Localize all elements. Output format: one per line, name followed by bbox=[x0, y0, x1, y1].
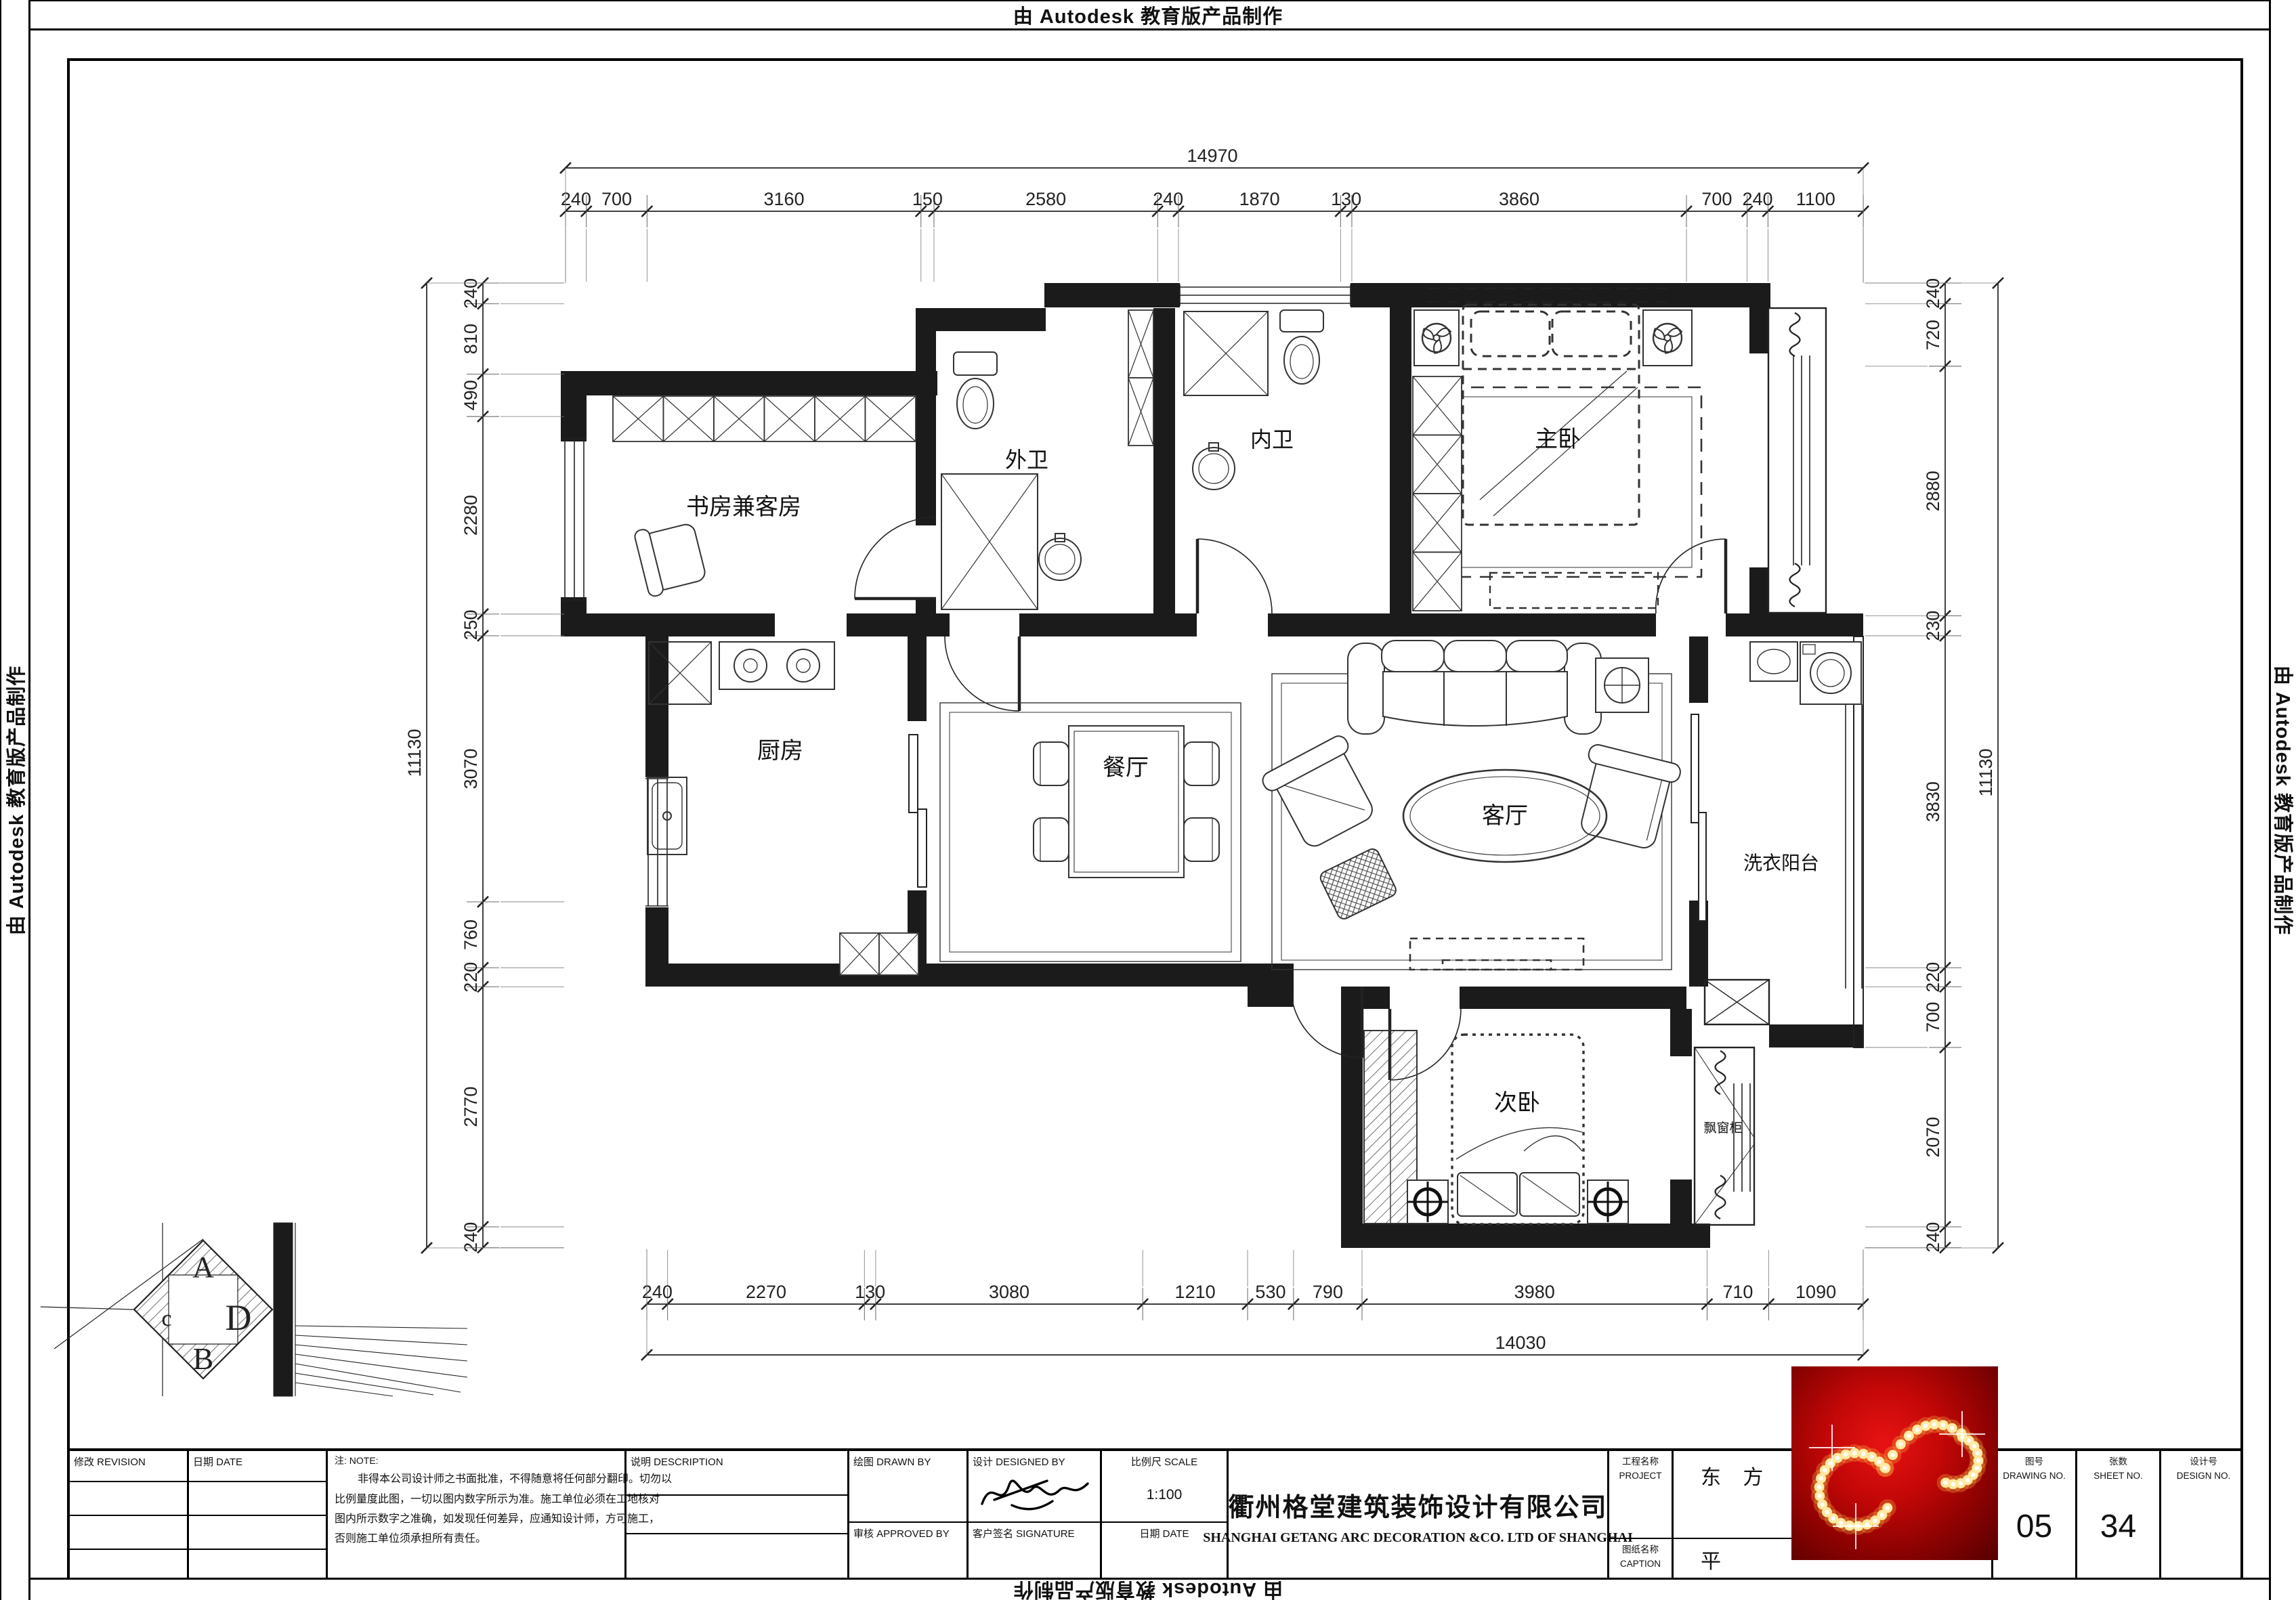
dim-label: 2070 bbox=[1923, 1117, 1943, 1157]
dim-label: 760 bbox=[461, 920, 481, 950]
logo-lights bbox=[1791, 1366, 1998, 1560]
room-label-bath_outer: 外卫 bbox=[1005, 448, 1048, 472]
dim-label: 1210 bbox=[1175, 1282, 1216, 1302]
door-bath-inner bbox=[1197, 539, 1272, 613]
second-bed-pillows bbox=[1458, 1173, 1579, 1216]
date-row bbox=[189, 1482, 326, 1516]
dim-label: 240 bbox=[642, 1282, 673, 1302]
master-rug-inner bbox=[1437, 397, 1692, 567]
dim-label: 150 bbox=[912, 189, 943, 209]
date-row bbox=[189, 1516, 326, 1550]
dim-label: 530 bbox=[1255, 1282, 1285, 1302]
room-label-laundry: 洗衣阳台 bbox=[1743, 852, 1819, 873]
dim-label: 2280 bbox=[461, 495, 481, 536]
second-nightstand-right bbox=[1588, 1180, 1628, 1224]
dim-label: 240 bbox=[1153, 189, 1183, 209]
description-row bbox=[626, 1534, 847, 1580]
tb-date-col: 日期 DATE bbox=[189, 1451, 328, 1580]
notes-line: 图内所示数字之准确，如发现任何差异，应通知设计师，方可施工， bbox=[335, 1509, 618, 1529]
notes-line: 非得本公司设计师之书面批准，不得随意将任何部分翻印。切勿以 bbox=[335, 1469, 618, 1489]
design-no-label-cn: 设计号 bbox=[2190, 1456, 2217, 1467]
dim-label: 220 bbox=[461, 962, 481, 993]
dim-label: 3860 bbox=[1499, 189, 1539, 209]
tb-company-col: 衢州格堂建筑装饰设计有限公司 SHANGHAI GETANG ARC DECOR… bbox=[1229, 1451, 1609, 1580]
room-label-second: 次卧 bbox=[1494, 1090, 1540, 1116]
project-label-cn: 工程名称 bbox=[1622, 1456, 1659, 1467]
dim-label: 3080 bbox=[989, 1282, 1029, 1302]
sheet-no-label-en: SHEET NO. bbox=[2093, 1471, 2143, 1481]
laundry-sink bbox=[1750, 642, 1798, 681]
furniture bbox=[633, 305, 1861, 1224]
second-nightstand-left bbox=[1407, 1180, 1448, 1224]
dim-label: 810 bbox=[461, 324, 481, 354]
shower-inner bbox=[1184, 311, 1268, 395]
toilet-inner bbox=[1280, 310, 1323, 384]
tb-revision-col: 修改 REVISION bbox=[70, 1451, 189, 1580]
armchair-left bbox=[1260, 733, 1384, 855]
dim-label: 700 bbox=[1701, 189, 1732, 209]
basin-inner bbox=[1193, 443, 1235, 490]
ottoman bbox=[1318, 847, 1398, 922]
compass-letter-a: A bbox=[192, 1251, 214, 1284]
compass-letter-b: B bbox=[193, 1341, 214, 1376]
description-row bbox=[626, 1496, 847, 1534]
company-name-en: SHANGHAI GETANG ARC DECORATION &CO. LTD … bbox=[1203, 1530, 1633, 1546]
tb-sheetno-col: 张数 SHEET NO. 34 bbox=[2077, 1451, 2161, 1580]
designer-signature bbox=[971, 1469, 1100, 1516]
living-tv-cabinet bbox=[1410, 938, 1583, 970]
dim-label: 2880 bbox=[1923, 471, 1943, 511]
company-logo bbox=[1791, 1366, 1998, 1560]
study-chair bbox=[633, 517, 708, 597]
room-label-study: 书房兼客房 bbox=[686, 494, 801, 520]
approved-by-label: 审核 APPROVED BY bbox=[849, 1523, 966, 1544]
duct-shaft bbox=[1705, 980, 1769, 1024]
sheet-no-value: 34 bbox=[2077, 1508, 2159, 1545]
notes-line: 比例量度此图，一切以图内数字所示为准。施工单位必须在工地核对 bbox=[335, 1490, 618, 1509]
drawing-no-value: 05 bbox=[1993, 1508, 2075, 1545]
scale-value: 1:100 bbox=[1102, 1487, 1227, 1503]
room-label-bath_inner: 内卫 bbox=[1250, 427, 1294, 452]
tb-designno-col: 设计号 DESIGN NO. bbox=[2161, 1451, 2246, 1580]
company-name-cn: 衢州格堂建筑装饰设计有限公司 bbox=[1229, 1486, 1608, 1523]
design-no-label-en: DESIGN NO. bbox=[2177, 1471, 2231, 1481]
notes-header: 注: NOTE: bbox=[335, 1452, 618, 1469]
dim-label: 790 bbox=[1313, 1282, 1343, 1302]
dim-label: 3070 bbox=[461, 748, 481, 789]
floor-plan: A D B c 24070031601502580240187013038607… bbox=[0, 0, 2296, 1600]
tb-notes-col: 注: NOTE: 非得本公司设计师之书面批准，不得随意将任何部分翻印。切勿以 比… bbox=[328, 1451, 626, 1580]
room-label-living: 客厅 bbox=[1482, 803, 1528, 829]
autodesk-banner-left: 由 Autodesk 教育版产品制作 bbox=[0, 0, 30, 1600]
compass-letter-c: c bbox=[161, 1306, 171, 1331]
master-nightstand-right bbox=[1643, 310, 1692, 366]
revision-row bbox=[70, 1482, 187, 1516]
autodesk-stamp-text: 由 Autodesk 教育版产品制作 bbox=[1013, 1, 1283, 29]
revision-row bbox=[70, 1550, 187, 1580]
autodesk-banner-top: 由 Autodesk 教育版产品制作 bbox=[0, 0, 2296, 30]
autodesk-banner-bottom: 由 Autodesk 教育版产品制作 bbox=[0, 1578, 2296, 1600]
dim-label: 2580 bbox=[1025, 189, 1066, 209]
washing-machine bbox=[1800, 642, 1861, 704]
dim-label: 14970 bbox=[1187, 146, 1237, 166]
stove bbox=[719, 642, 834, 689]
sheet: 由 Autodesk 教育版产品制作 由 Autodesk 教育版产品制作 由 … bbox=[0, 0, 2296, 1600]
drawn-by-label: 绘图 DRAWN BY bbox=[849, 1451, 966, 1472]
dining-table bbox=[1069, 726, 1184, 878]
tb-designed-col: 设计 DESIGNED BY 客户签名 SIGNATURE bbox=[969, 1451, 1102, 1580]
tb-description-col: 说明 DESCRIPTION bbox=[626, 1451, 849, 1580]
side-table bbox=[1596, 658, 1649, 712]
revision-header: 修改 REVISION bbox=[70, 1451, 187, 1472]
revision-row bbox=[70, 1516, 187, 1550]
dim-label: 130 bbox=[855, 1282, 885, 1302]
master-nightstand-left bbox=[1414, 310, 1459, 366]
room-label-master: 主卧 bbox=[1535, 427, 1581, 452]
bay-window-master bbox=[1768, 308, 1826, 613]
dim-label: 14030 bbox=[1495, 1333, 1546, 1353]
room-label-dining: 餐厅 bbox=[1103, 755, 1149, 781]
dim-label: 1090 bbox=[1795, 1282, 1836, 1302]
dim-label: 240 bbox=[461, 278, 481, 309]
master-tv-cabinet bbox=[1490, 573, 1658, 608]
basin-outer bbox=[1039, 534, 1081, 580]
door-kitchen-sliding bbox=[909, 735, 927, 887]
master-rug bbox=[1428, 387, 1701, 577]
dim-label: 700 bbox=[1923, 1002, 1943, 1033]
dim-label: 3830 bbox=[1923, 781, 1943, 822]
dim-label: 700 bbox=[601, 189, 632, 209]
dim-label: 240 bbox=[561, 189, 591, 209]
room-label-kitchen: 厨房 bbox=[757, 738, 803, 764]
door-bath-outer bbox=[945, 636, 1019, 711]
dim-label: 720 bbox=[1923, 320, 1943, 350]
dim-label: 240 bbox=[1923, 278, 1943, 309]
dim-label: 3980 bbox=[1514, 1282, 1555, 1302]
autodesk-stamp-text: 由 Autodesk 教育版产品制作 bbox=[1, 665, 29, 934]
door-master bbox=[1656, 539, 1726, 613]
autodesk-stamp-text: 由 Autodesk 教育版产品制作 bbox=[1013, 1577, 1283, 1600]
description-header: 说明 DESCRIPTION bbox=[626, 1451, 847, 1472]
bay-window-second bbox=[1695, 1047, 1754, 1225]
dim-label: 2270 bbox=[746, 1282, 786, 1302]
dim-label: 250 bbox=[461, 609, 481, 640]
tb-drawingno-col: 图号 DRAWING NO. 05 bbox=[1993, 1451, 2077, 1580]
autodesk-stamp-text: 由 Autodesk 教育版产品制作 bbox=[2270, 665, 2296, 934]
room-label-bay_cabinet: 飘窗柜 bbox=[1703, 1121, 1742, 1136]
shower-outer bbox=[941, 474, 1038, 609]
dim-label: 1100 bbox=[1796, 189, 1835, 209]
second-bed-blanket bbox=[1456, 1127, 1582, 1159]
dim-label: 1870 bbox=[1239, 189, 1280, 209]
client-signature-label: 客户签名 SIGNATURE bbox=[969, 1523, 1100, 1544]
drawing-no-label-cn: 图号 bbox=[2025, 1456, 2043, 1467]
notes-line: 否则施工单位须承担所有责任。 bbox=[335, 1529, 618, 1549]
dim-label: 490 bbox=[461, 380, 481, 410]
caption-label-cn: 图纸名称 bbox=[1622, 1544, 1659, 1555]
compass-letter-d: D bbox=[226, 1297, 252, 1338]
dim-label: 11130 bbox=[404, 729, 425, 777]
scale-label: 比例尺 SCALE bbox=[1102, 1451, 1227, 1472]
date-header: 日期 DATE bbox=[189, 1451, 326, 1472]
dim-label: 11130 bbox=[1976, 748, 1996, 796]
dim-label: 130 bbox=[1331, 189, 1361, 209]
dim-label: 230 bbox=[1923, 611, 1943, 641]
dim-label: 2770 bbox=[461, 1087, 481, 1127]
project-label-en: PROJECT bbox=[1619, 1471, 1661, 1481]
sheet-no-label-cn: 张数 bbox=[2109, 1456, 2127, 1467]
caption-label-en: CAPTION bbox=[1620, 1559, 1661, 1569]
tb-scale-col: 比例尺 SCALE 1:100 日期 DATE bbox=[1102, 1451, 1229, 1580]
drawing-no-label-en: DRAWING NO. bbox=[2003, 1471, 2066, 1481]
dim-label: 3160 bbox=[764, 189, 805, 209]
orientation-symbol: A D B c bbox=[41, 1223, 467, 1396]
dim-label: 710 bbox=[1722, 1282, 1753, 1302]
dim-label: 240 bbox=[1742, 189, 1772, 209]
dim-label: 220 bbox=[1923, 962, 1943, 993]
tb-rightlabels-col: 工程名称 PROJECT 图纸名称 CAPTION bbox=[1609, 1451, 1674, 1580]
door-balcony-sliding bbox=[1691, 714, 1706, 921]
autodesk-banner-right: 由 Autodesk 教育版产品制作 bbox=[2269, 0, 2296, 1600]
toilet-outer bbox=[954, 352, 997, 429]
tb-drawn-col: 绘图 DRAWN BY 审核 APPROVED BY bbox=[849, 1451, 969, 1580]
date-row bbox=[189, 1550, 326, 1580]
door-study bbox=[855, 517, 936, 599]
sofa bbox=[1348, 641, 1601, 734]
